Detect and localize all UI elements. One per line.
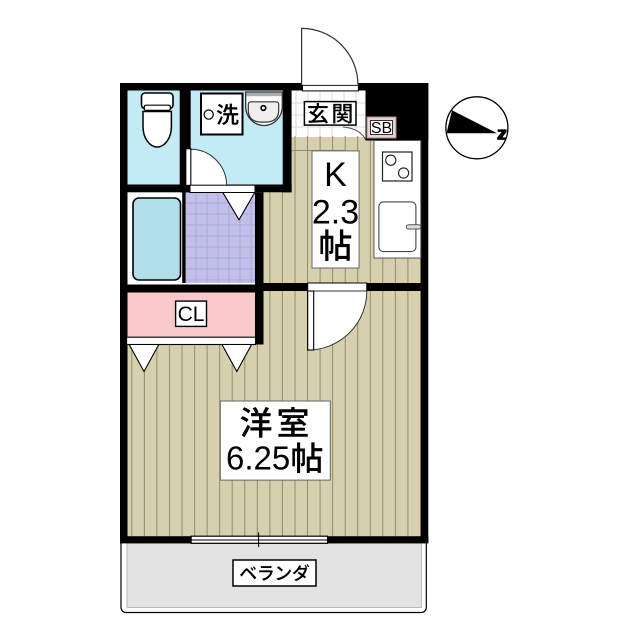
svg-text:6.25: 6.25 bbox=[226, 440, 290, 477]
svg-text:K: K bbox=[324, 156, 347, 194]
svg-text:SB: SB bbox=[371, 120, 392, 137]
svg-text:2.3: 2.3 bbox=[312, 194, 359, 232]
svg-text:CL: CL bbox=[178, 303, 205, 326]
